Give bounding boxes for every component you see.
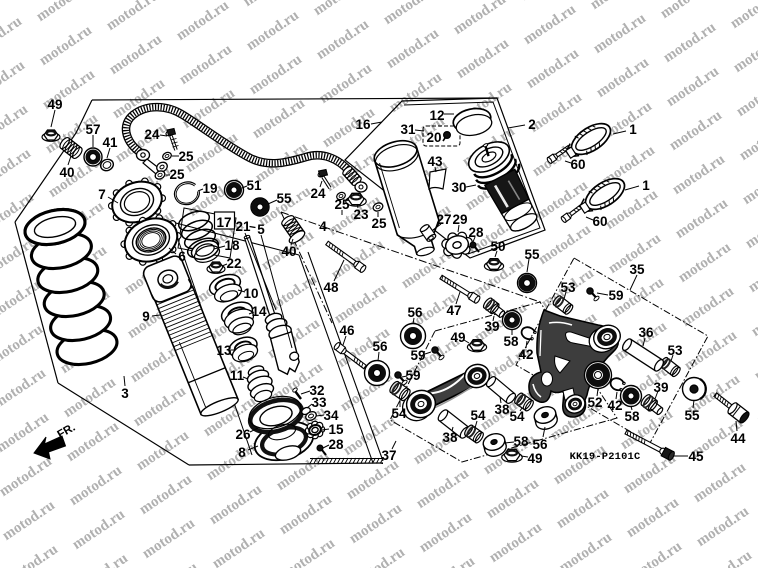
svg-text:28: 28	[328, 437, 344, 452]
svg-text:21: 21	[235, 219, 251, 234]
svg-text:54: 54	[470, 408, 486, 423]
svg-text:19: 19	[202, 181, 217, 196]
svg-text:53: 53	[667, 343, 683, 358]
svg-text:56: 56	[407, 305, 423, 320]
svg-text:15: 15	[328, 422, 344, 437]
svg-text:49: 49	[47, 97, 62, 112]
svg-text:50: 50	[490, 239, 505, 254]
svg-text:27: 27	[436, 212, 451, 227]
svg-text:60: 60	[570, 157, 585, 172]
svg-text:10: 10	[243, 286, 258, 301]
svg-text:4: 4	[319, 219, 327, 234]
svg-text:25: 25	[371, 216, 387, 231]
svg-text:49: 49	[527, 451, 542, 466]
svg-text:55: 55	[276, 191, 292, 206]
svg-text:37: 37	[381, 448, 396, 463]
svg-text:55: 55	[524, 247, 540, 262]
svg-text:1: 1	[642, 178, 650, 193]
svg-text:44: 44	[730, 431, 746, 446]
svg-text:6: 6	[178, 249, 186, 264]
svg-text:57: 57	[85, 122, 100, 137]
svg-text:29: 29	[452, 212, 467, 227]
svg-text:56: 56	[532, 437, 548, 452]
svg-text:39: 39	[484, 319, 499, 334]
svg-text:55: 55	[684, 408, 700, 423]
svg-text:7: 7	[98, 187, 106, 202]
svg-text:25: 25	[169, 167, 185, 182]
svg-text:40: 40	[281, 244, 296, 259]
svg-text:1: 1	[629, 122, 637, 137]
svg-text:48: 48	[323, 280, 339, 295]
svg-text:46: 46	[339, 323, 355, 338]
svg-text:36: 36	[638, 325, 654, 340]
svg-text:41: 41	[102, 135, 118, 150]
svg-text:40: 40	[59, 165, 74, 180]
svg-text:24: 24	[144, 127, 160, 142]
svg-text:23: 23	[353, 207, 369, 222]
svg-text:56: 56	[372, 339, 388, 354]
svg-text:60: 60	[592, 214, 607, 229]
svg-text:59: 59	[410, 348, 425, 363]
svg-text:43: 43	[427, 154, 443, 169]
svg-text:38: 38	[442, 430, 458, 445]
svg-text:58: 58	[503, 334, 519, 349]
svg-text:24: 24	[310, 186, 326, 201]
svg-text:25: 25	[178, 149, 194, 164]
svg-text:16: 16	[355, 117, 371, 132]
svg-text:22: 22	[226, 256, 241, 271]
svg-text:20: 20	[426, 130, 441, 145]
svg-text:26: 26	[235, 427, 251, 442]
svg-text:35: 35	[629, 262, 645, 277]
svg-text:58: 58	[624, 409, 640, 424]
svg-text:11: 11	[230, 368, 245, 383]
svg-text:52: 52	[587, 395, 602, 410]
svg-text:KK19-P2101C: KK19-P2101C	[570, 451, 641, 463]
svg-text:54: 54	[509, 409, 525, 424]
svg-text:30: 30	[451, 180, 466, 195]
svg-text:17: 17	[216, 215, 231, 230]
svg-text:14: 14	[251, 304, 267, 319]
svg-text:9: 9	[142, 309, 150, 324]
svg-text:25: 25	[334, 197, 350, 212]
svg-text:8: 8	[238, 445, 246, 460]
svg-text:3: 3	[121, 386, 129, 401]
svg-text:49: 49	[450, 330, 465, 345]
svg-text:12: 12	[429, 108, 444, 123]
svg-text:53: 53	[560, 280, 576, 295]
svg-text:54: 54	[391, 406, 407, 421]
svg-text:2: 2	[528, 117, 536, 132]
svg-text:18: 18	[224, 238, 240, 253]
svg-text:51: 51	[246, 178, 262, 193]
svg-text:59: 59	[608, 288, 623, 303]
svg-text:42: 42	[607, 398, 622, 413]
svg-text:28: 28	[468, 225, 484, 240]
svg-text:13: 13	[216, 343, 232, 358]
svg-text:47: 47	[446, 303, 461, 318]
svg-text:42: 42	[518, 347, 533, 362]
svg-text:31: 31	[400, 122, 416, 137]
svg-text:38: 38	[494, 402, 510, 417]
svg-text:58: 58	[513, 434, 529, 449]
svg-text:39: 39	[653, 380, 668, 395]
svg-text:45: 45	[688, 449, 704, 464]
svg-text:5: 5	[257, 222, 265, 237]
svg-text:59: 59	[405, 368, 420, 383]
svg-text:34: 34	[323, 408, 339, 423]
